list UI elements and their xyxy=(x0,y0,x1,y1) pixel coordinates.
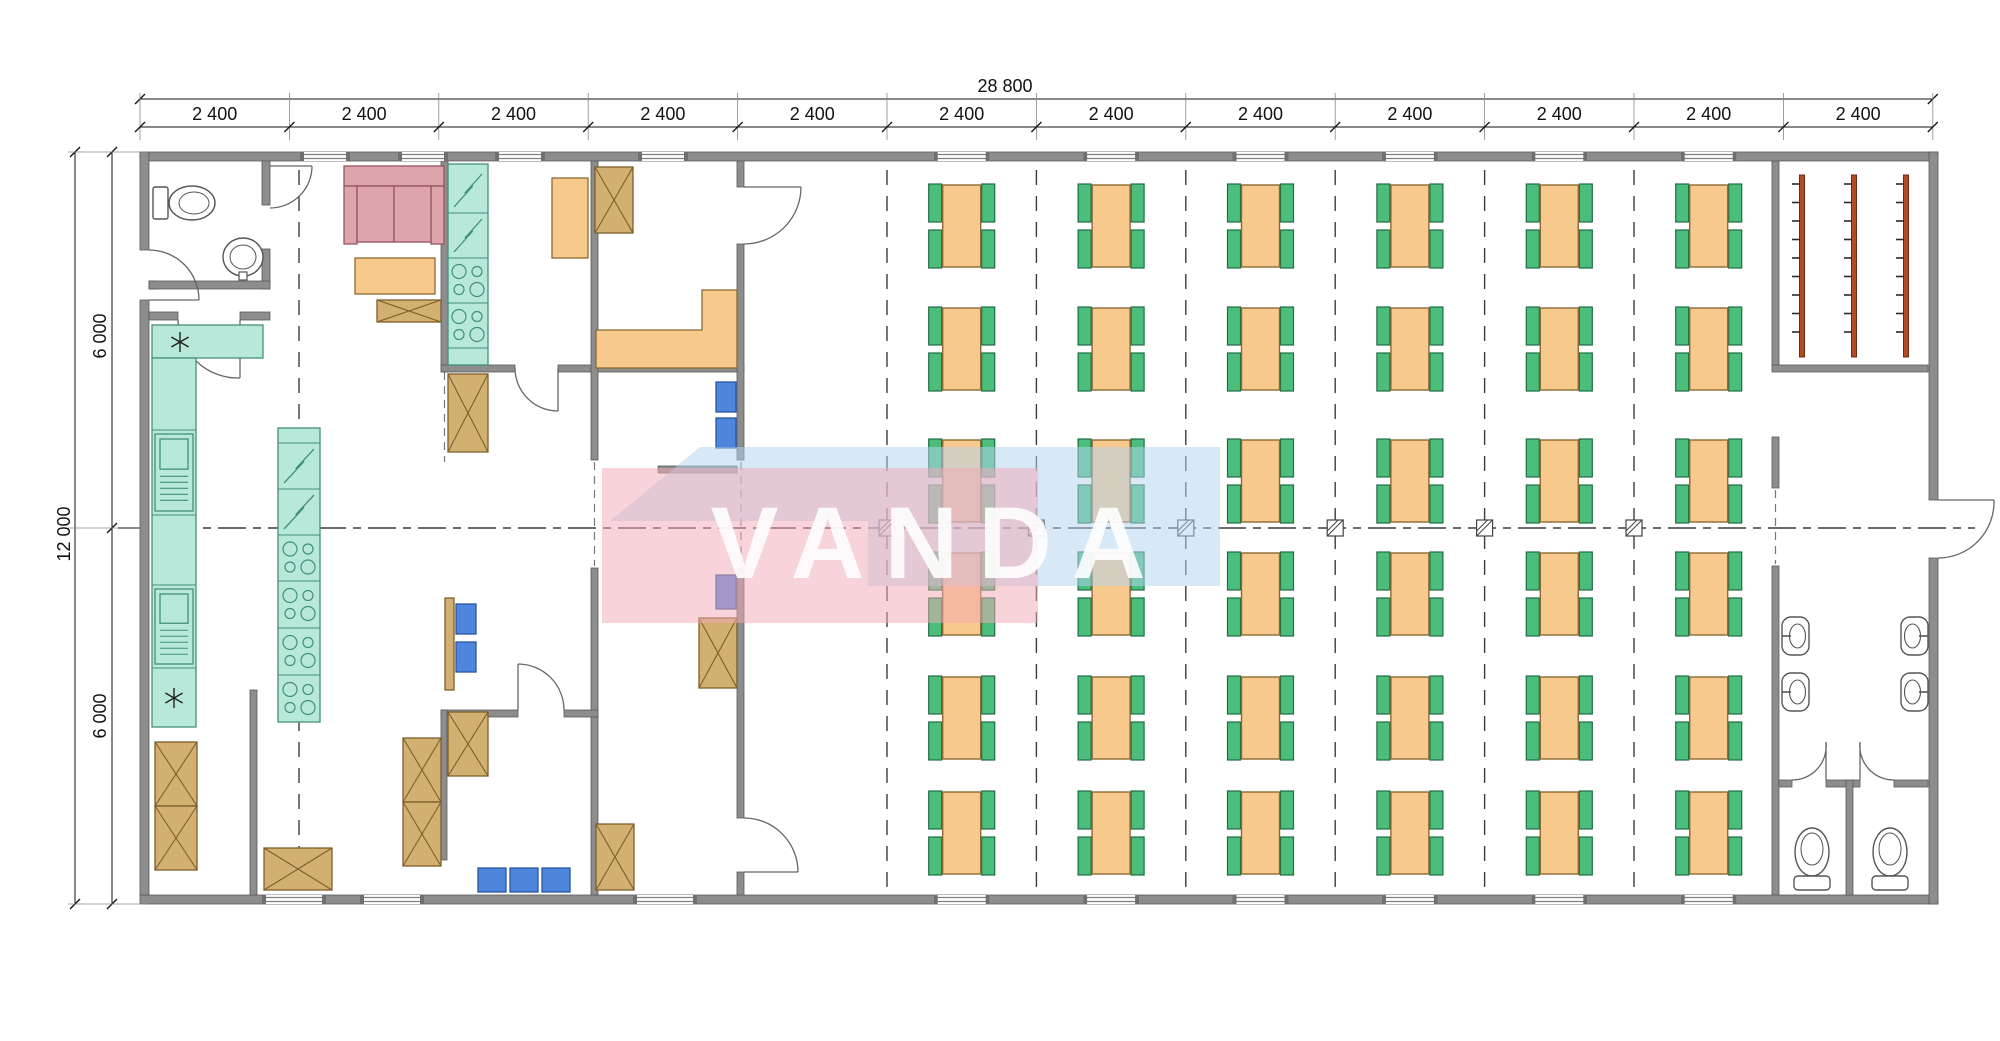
dining-table xyxy=(1690,792,1728,874)
chair xyxy=(1729,485,1742,523)
toilet xyxy=(153,186,215,220)
chair xyxy=(1430,791,1443,829)
chair xyxy=(1228,353,1241,391)
chair xyxy=(1579,676,1592,714)
dining-table xyxy=(1242,677,1280,759)
dining-set xyxy=(1377,791,1443,875)
chair xyxy=(1131,837,1144,875)
dining-table xyxy=(943,677,981,759)
window xyxy=(1531,152,1587,161)
dining-table xyxy=(943,308,981,390)
dining-table xyxy=(1391,440,1429,522)
chair xyxy=(1377,676,1390,714)
dining-set xyxy=(1078,791,1144,875)
chair xyxy=(1676,722,1689,760)
dining-set xyxy=(1078,307,1144,391)
sofa xyxy=(344,166,444,244)
dining-table xyxy=(1540,440,1578,522)
chair xyxy=(982,676,995,714)
chair xyxy=(1131,598,1144,636)
blue-chair xyxy=(542,868,570,892)
bay-dimension-label: 2 400 xyxy=(1387,104,1432,124)
washroom-basin xyxy=(1901,617,1928,655)
wall-segment xyxy=(1826,780,1860,787)
chair xyxy=(1676,676,1689,714)
chair xyxy=(1078,791,1091,829)
window xyxy=(300,152,350,161)
chair xyxy=(1430,485,1443,523)
chair xyxy=(1228,791,1241,829)
chair xyxy=(1377,485,1390,523)
chair xyxy=(1078,722,1091,760)
wall-segment xyxy=(1772,161,1779,365)
chair xyxy=(1228,837,1241,875)
chair xyxy=(1131,184,1144,222)
chair xyxy=(1131,230,1144,268)
kitchen-counter xyxy=(152,358,196,727)
wall-segment xyxy=(140,152,149,250)
dining-set xyxy=(1676,307,1742,391)
chair xyxy=(1228,676,1241,714)
chair xyxy=(1579,598,1592,636)
chair xyxy=(1430,307,1443,345)
chair xyxy=(1676,837,1689,875)
chair xyxy=(929,307,942,345)
column-marker xyxy=(1327,520,1343,536)
wall-segment xyxy=(240,312,270,320)
chair xyxy=(929,837,942,875)
door-swing xyxy=(1792,742,1826,780)
chair xyxy=(1281,307,1294,345)
chair xyxy=(1526,598,1539,636)
window xyxy=(1531,895,1587,904)
dining-set xyxy=(1228,184,1294,268)
chair xyxy=(1579,485,1592,523)
washbasin xyxy=(223,238,263,280)
window xyxy=(262,895,326,904)
chair xyxy=(1729,837,1742,875)
blue-chair xyxy=(478,868,506,892)
dining-set xyxy=(1228,791,1294,875)
dining-table xyxy=(1092,185,1130,267)
stall-toilet xyxy=(1794,828,1830,890)
chair xyxy=(1430,552,1443,590)
window xyxy=(1083,152,1139,161)
watermark-text: VANDA xyxy=(710,486,1165,600)
chair xyxy=(1676,791,1689,829)
chair xyxy=(1281,598,1294,636)
coat-rack xyxy=(1844,175,1857,357)
bay-dimension-label: 2 400 xyxy=(342,104,387,124)
bay-dimension-label: 2 400 xyxy=(939,104,984,124)
wall-segment xyxy=(1772,566,1779,895)
dining-table xyxy=(1690,185,1728,267)
chair xyxy=(1281,353,1294,391)
chair xyxy=(1579,230,1592,268)
chair xyxy=(1281,439,1294,477)
wall-segment xyxy=(140,300,149,895)
dining-set xyxy=(1526,791,1592,875)
wall-segment xyxy=(1929,152,1938,500)
chair xyxy=(1078,676,1091,714)
window xyxy=(934,152,990,161)
chair xyxy=(1377,598,1390,636)
chair xyxy=(1729,676,1742,714)
coat-rack xyxy=(1896,175,1909,357)
chair xyxy=(1579,837,1592,875)
wall-segment xyxy=(1894,780,1928,787)
bay-dimension-label: 2 400 xyxy=(640,104,685,124)
chair xyxy=(1430,184,1443,222)
chair xyxy=(1131,722,1144,760)
chair xyxy=(1377,722,1390,760)
total-width-dimension: 28 800 xyxy=(977,76,1032,96)
work-table xyxy=(552,178,588,258)
dining-table xyxy=(1391,308,1429,390)
dining-set xyxy=(1676,184,1742,268)
chair xyxy=(982,230,995,268)
chair xyxy=(1131,353,1144,391)
chair xyxy=(1676,307,1689,345)
dining-set xyxy=(1526,439,1592,523)
chair xyxy=(1676,598,1689,636)
wall-segment xyxy=(149,312,178,320)
blue-box xyxy=(716,382,736,412)
window xyxy=(1681,152,1737,161)
chair xyxy=(982,184,995,222)
door-swing xyxy=(1938,500,1994,558)
door-swing xyxy=(270,166,312,208)
wall-segment xyxy=(1779,780,1792,787)
chair xyxy=(1078,837,1091,875)
chair xyxy=(1526,184,1539,222)
dining-table xyxy=(1092,308,1130,390)
dining-table xyxy=(1690,440,1728,522)
washroom-basin xyxy=(1901,673,1928,711)
dining-table xyxy=(1242,440,1280,522)
dining-table xyxy=(1092,677,1130,759)
chair xyxy=(1430,598,1443,636)
chair xyxy=(1430,676,1443,714)
chair xyxy=(1526,722,1539,760)
chair xyxy=(1676,184,1689,222)
door-swing xyxy=(1860,742,1894,780)
chair xyxy=(1281,676,1294,714)
dining-table xyxy=(1540,677,1578,759)
washroom-basin xyxy=(1782,617,1809,655)
door-swing xyxy=(518,664,564,710)
dining-set xyxy=(929,676,995,760)
chair xyxy=(1579,722,1592,760)
chair xyxy=(929,722,942,760)
dining-set xyxy=(1377,184,1443,268)
chair xyxy=(982,722,995,760)
chair xyxy=(1281,722,1294,760)
chair xyxy=(1377,230,1390,268)
bay-dimension-label: 2 400 xyxy=(1238,104,1283,124)
chair xyxy=(1377,552,1390,590)
dining-set xyxy=(1078,184,1144,268)
dining-set xyxy=(1676,791,1742,875)
dining-set xyxy=(1377,552,1443,636)
chair xyxy=(929,791,942,829)
dining-set xyxy=(1228,307,1294,391)
chair xyxy=(1676,552,1689,590)
bay-dimension-label: 2 400 xyxy=(1836,104,1881,124)
chair xyxy=(1078,353,1091,391)
door-swing xyxy=(149,250,199,300)
dining-table xyxy=(943,792,981,874)
chair xyxy=(1228,184,1241,222)
dining-table xyxy=(1391,792,1429,874)
chair xyxy=(1526,439,1539,477)
chair xyxy=(1078,598,1091,636)
window xyxy=(1382,895,1438,904)
chair xyxy=(982,307,995,345)
chair xyxy=(1228,230,1241,268)
window xyxy=(1681,895,1737,904)
wall-segment xyxy=(737,161,744,187)
coffee-table xyxy=(355,258,435,294)
chair xyxy=(1281,230,1294,268)
bay-dimension-label: 2 400 xyxy=(1686,104,1731,124)
chair xyxy=(1579,552,1592,590)
dining-set xyxy=(1676,552,1742,636)
height-half-dimension-bottom: 6 000 xyxy=(90,693,110,738)
window xyxy=(495,152,545,161)
dining-table xyxy=(1540,185,1578,267)
chair xyxy=(1228,552,1241,590)
chair xyxy=(982,837,995,875)
door-swing xyxy=(744,187,801,244)
dining-table xyxy=(943,185,981,267)
chair xyxy=(1377,439,1390,477)
dining-table xyxy=(1540,308,1578,390)
column-marker xyxy=(1477,520,1493,536)
blue-box xyxy=(456,604,476,634)
blue-box xyxy=(456,642,476,672)
floor-plan-canvas: 28 800 12 000 6 000 6 000 2 4002 4002 40… xyxy=(0,0,2000,1041)
dining-table xyxy=(1391,553,1429,635)
dining-set xyxy=(929,307,995,391)
l-shaped-counter xyxy=(596,290,737,368)
blue-chair xyxy=(510,868,538,892)
chair xyxy=(1579,353,1592,391)
chair xyxy=(1228,722,1241,760)
dining-set xyxy=(1377,676,1443,760)
bay-dimension-label: 2 400 xyxy=(1089,104,1134,124)
chair xyxy=(929,676,942,714)
stall-toilet xyxy=(1872,828,1908,890)
bay-dimension-label: 2 400 xyxy=(1537,104,1582,124)
chair xyxy=(1281,791,1294,829)
dining-set xyxy=(1377,307,1443,391)
window xyxy=(1382,152,1438,161)
chair xyxy=(1281,552,1294,590)
total-height-dimension: 12 000 xyxy=(54,506,74,561)
chair xyxy=(1729,791,1742,829)
dining-set xyxy=(1078,676,1144,760)
chair xyxy=(1729,184,1742,222)
chair xyxy=(1729,439,1742,477)
chair xyxy=(1526,353,1539,391)
dining-table xyxy=(1242,792,1280,874)
wall-segment xyxy=(441,710,447,860)
chair xyxy=(929,230,942,268)
dining-table xyxy=(1391,677,1429,759)
dining-set xyxy=(929,791,995,875)
chair xyxy=(1430,837,1443,875)
window xyxy=(1083,895,1139,904)
wall-segment xyxy=(1772,365,1928,372)
washroom-basin xyxy=(1782,673,1809,711)
chair xyxy=(1228,485,1241,523)
bay-dimension-label: 2 400 xyxy=(491,104,536,124)
chair xyxy=(1526,676,1539,714)
window xyxy=(633,895,697,904)
wall-segment xyxy=(1929,558,1938,904)
dining-table xyxy=(1092,792,1130,874)
chair xyxy=(1377,353,1390,391)
chair xyxy=(1377,184,1390,222)
chair xyxy=(1729,722,1742,760)
chair xyxy=(982,791,995,829)
dining-table xyxy=(1690,308,1728,390)
wall-segment xyxy=(1846,780,1853,895)
chair xyxy=(1430,230,1443,268)
dining-set xyxy=(1526,676,1592,760)
dining-set xyxy=(1526,307,1592,391)
chair xyxy=(1430,439,1443,477)
kitchen-island xyxy=(278,428,320,722)
coat-rack xyxy=(1792,175,1805,357)
chair xyxy=(1676,353,1689,391)
chair xyxy=(1228,598,1241,636)
chair xyxy=(1281,184,1294,222)
chair xyxy=(1526,485,1539,523)
washroom-fixtures xyxy=(1782,617,1928,890)
chair xyxy=(1078,184,1091,222)
column-marker xyxy=(1626,520,1642,536)
dining-set xyxy=(1526,552,1592,636)
chair xyxy=(1281,485,1294,523)
wall-segment xyxy=(262,161,270,205)
chair xyxy=(1131,676,1144,714)
chair xyxy=(1729,307,1742,345)
bay-dimension-label: 2 400 xyxy=(790,104,835,124)
dining-table xyxy=(1242,185,1280,267)
chair xyxy=(1676,485,1689,523)
chair xyxy=(1729,598,1742,636)
window xyxy=(398,152,448,161)
wall-segment xyxy=(250,690,257,895)
chair xyxy=(1676,439,1689,477)
chair xyxy=(1676,230,1689,268)
chair xyxy=(1377,791,1390,829)
dining-set xyxy=(1377,439,1443,523)
wall-segment xyxy=(149,281,270,289)
dining-table xyxy=(1690,677,1728,759)
dining-set xyxy=(1228,439,1294,523)
chair xyxy=(1078,230,1091,268)
window xyxy=(638,152,688,161)
chair xyxy=(1228,307,1241,345)
dining-set xyxy=(1228,552,1294,636)
dining-set xyxy=(1676,676,1742,760)
window xyxy=(934,895,990,904)
wall-segment xyxy=(564,710,598,717)
chair xyxy=(929,353,942,391)
dining-set xyxy=(1676,439,1742,523)
chair xyxy=(1526,230,1539,268)
dining-set xyxy=(1228,676,1294,760)
chair xyxy=(1579,307,1592,345)
chair xyxy=(1377,307,1390,345)
cloakroom-racks xyxy=(1792,175,1909,357)
chair xyxy=(1729,552,1742,590)
chair xyxy=(1430,722,1443,760)
window xyxy=(1233,152,1289,161)
chair xyxy=(1078,307,1091,345)
chair xyxy=(1281,837,1294,875)
dining-table xyxy=(1540,792,1578,874)
kitchen-counter xyxy=(152,325,263,358)
window xyxy=(1233,895,1289,904)
bench-strip xyxy=(445,598,454,690)
dining-table xyxy=(1391,185,1429,267)
dining-set xyxy=(1526,184,1592,268)
height-half-dimension-top: 6 000 xyxy=(90,313,110,358)
chair xyxy=(1131,307,1144,345)
wall-segment xyxy=(1772,437,1779,488)
chair xyxy=(1729,353,1742,391)
wall-segment xyxy=(737,872,744,895)
door-swing xyxy=(744,818,798,872)
chair xyxy=(1729,230,1742,268)
chair xyxy=(1131,791,1144,829)
floor-plan-drawing: 28 800 12 000 6 000 6 000 2 4002 4002 40… xyxy=(0,0,2000,1041)
door-swing xyxy=(515,368,558,411)
chair xyxy=(1526,552,1539,590)
chair xyxy=(982,353,995,391)
chair xyxy=(1377,837,1390,875)
wall-segment xyxy=(737,244,744,460)
vanda-watermark: VANDA xyxy=(602,447,1220,623)
bay-dimension-label: 2 400 xyxy=(192,104,237,124)
window xyxy=(360,895,424,904)
blue-box xyxy=(716,418,736,448)
chair xyxy=(1579,439,1592,477)
chair xyxy=(929,184,942,222)
chair xyxy=(1579,184,1592,222)
chair xyxy=(1526,837,1539,875)
chair xyxy=(1526,791,1539,829)
wall-segment xyxy=(441,365,515,372)
dining-table xyxy=(1540,553,1578,635)
chair xyxy=(1579,791,1592,829)
dining-table xyxy=(1242,553,1280,635)
dining-table xyxy=(1242,308,1280,390)
chair xyxy=(1228,439,1241,477)
dining-set xyxy=(929,184,995,268)
chair xyxy=(1430,353,1443,391)
chair xyxy=(1526,307,1539,345)
dining-table xyxy=(1690,553,1728,635)
